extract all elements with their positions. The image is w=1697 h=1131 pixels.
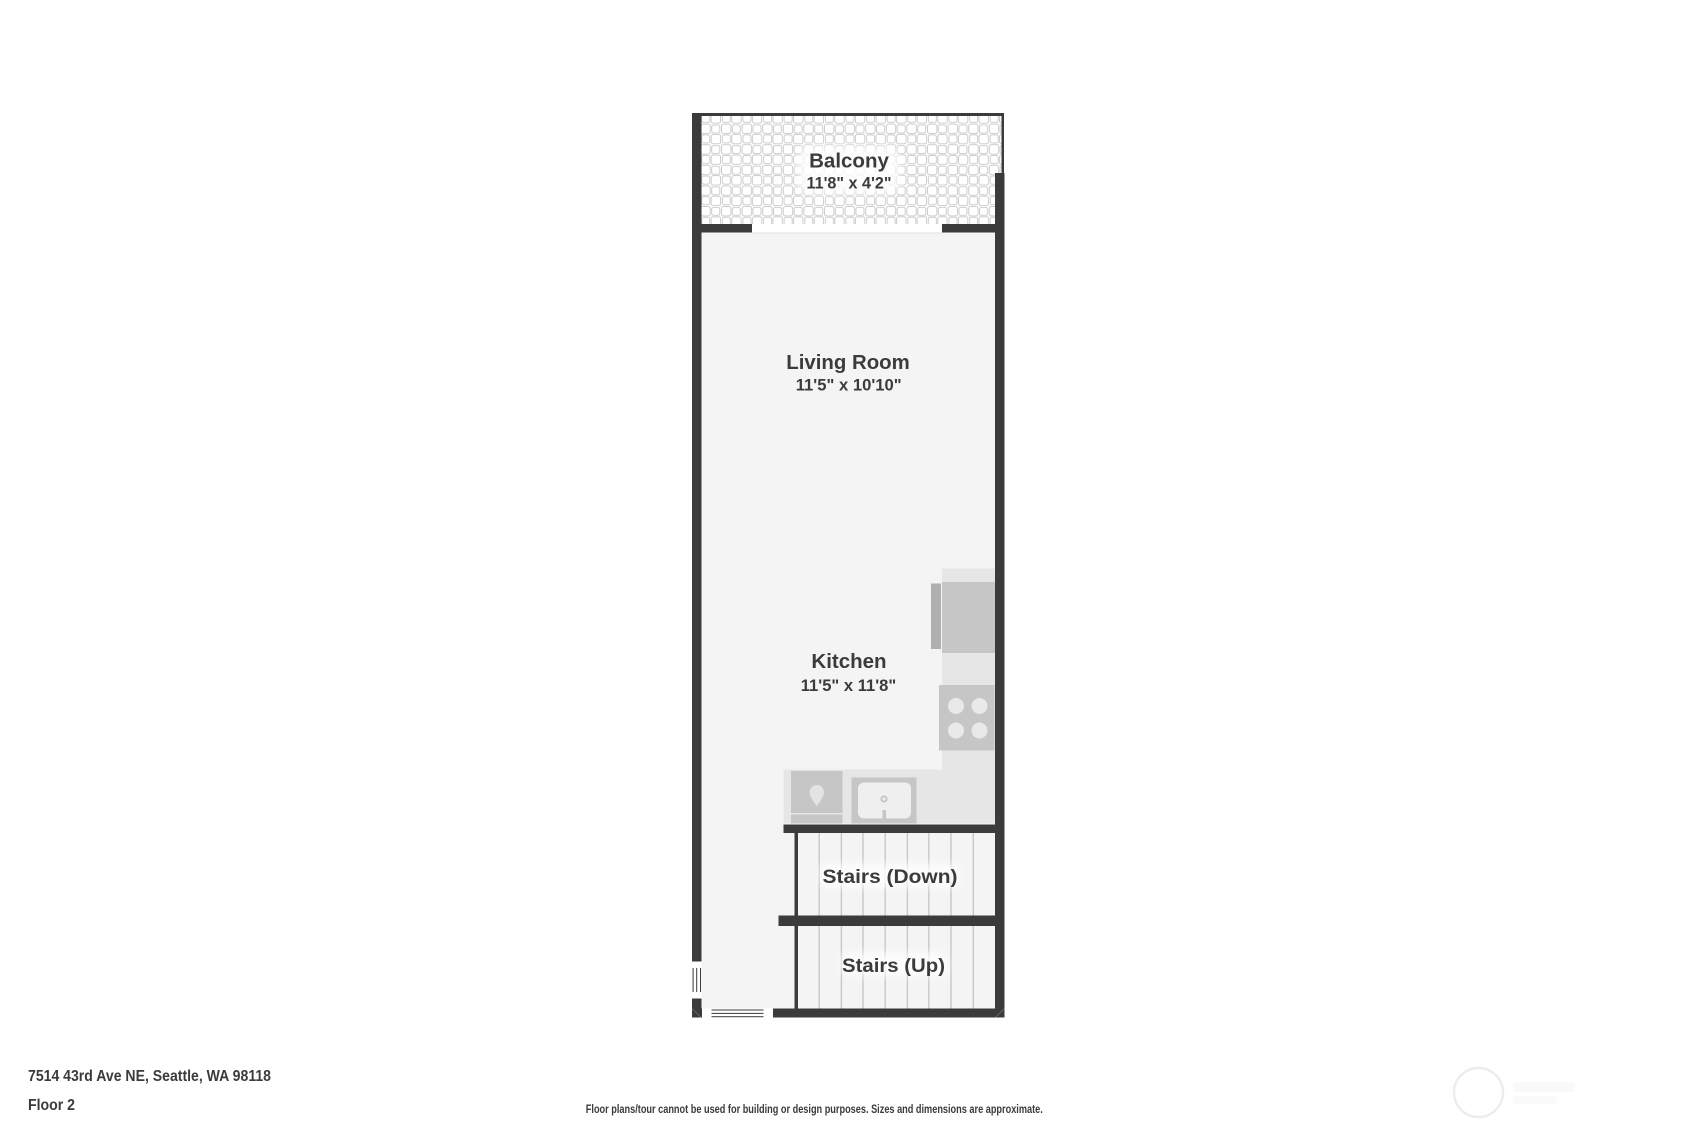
svg-text:7514 43rd Ave NE, Seattle, WA: 7514 43rd Ave NE, Seattle, WA 98118 [28, 1068, 271, 1085]
svg-text:Stairs (Up): Stairs (Up) [842, 955, 945, 977]
svg-text:11'8" x 4'2": 11'8" x 4'2" [807, 175, 892, 193]
svg-text:Living Room: Living Room [786, 351, 910, 374]
svg-text:11'5" x 11'8": 11'5" x 11'8" [801, 676, 897, 695]
svg-text:Kitchen: Kitchen [811, 650, 886, 673]
svg-text:Floor 2: Floor 2 [28, 1097, 75, 1114]
svg-text:Floor plans/tour cannot be use: Floor plans/tour cannot be used for buil… [586, 1102, 1043, 1116]
svg-text:11'5" x 10'10": 11'5" x 10'10" [796, 376, 902, 395]
svg-text:Balcony: Balcony [809, 150, 889, 173]
svg-text:Stairs (Down): Stairs (Down) [823, 866, 958, 888]
